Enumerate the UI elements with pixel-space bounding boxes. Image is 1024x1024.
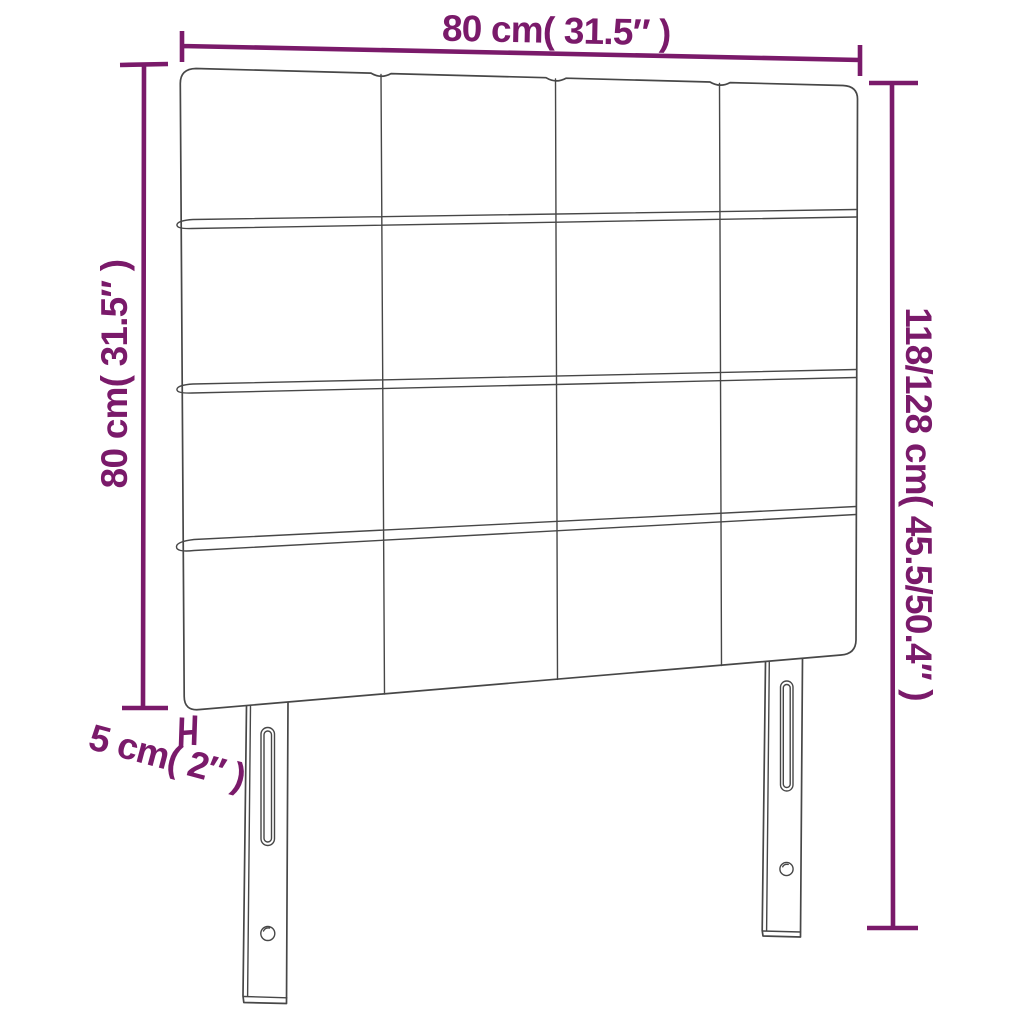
tuft-seam-2: [177, 370, 856, 394]
right-leg-inner-edge: [767, 662, 770, 931]
panel-separator-2: [556, 79, 558, 679]
panel-height-label: 80 cm( 31.5″ ): [94, 260, 135, 489]
left-leg-slot: [261, 728, 275, 846]
headboard-dimension-sketch: 80 cm( 31.5″ ) 80 cm( 31.5″ ) 118/128 cm…: [0, 0, 1024, 1024]
right-leg: [762, 659, 802, 937]
width-label: 80 cm( 31.5″ ): [442, 8, 671, 54]
left-leg-inner-edge: [248, 706, 251, 996]
panel-separator-1: [381, 75, 385, 695]
headboard-sketch: [176, 69, 857, 710]
right-leg-slot: [781, 681, 794, 791]
total-height-label: 118/128 cm( 45.5/50.4″ ): [898, 307, 939, 701]
tuft-seam-1: [177, 210, 856, 229]
headboard-outline: [180, 69, 857, 710]
left-leg: [243, 703, 288, 1004]
tuft-seam-3: [176, 507, 856, 552]
right-leg-screw-hole-arc: [783, 864, 789, 867]
left-leg-bottom-edge: [244, 997, 287, 998]
left-leg-slot-inner: [264, 731, 272, 842]
panel-separator-3: [720, 84, 722, 666]
dimension-labels: 80 cm( 31.5″ ) 80 cm( 31.5″ ) 118/128 cm…: [85, 8, 939, 798]
right-leg-bottom-edge: [763, 931, 801, 932]
left-leg-screw-hole-arc: [264, 928, 270, 931]
dimension-diagram: 80 cm( 31.5″ ) 80 cm( 31.5″ ) 118/128 cm…: [0, 0, 1024, 1024]
right-leg-slot-inner: [783, 685, 790, 788]
thickness-label: 5 cm( 2″ ): [85, 716, 250, 797]
